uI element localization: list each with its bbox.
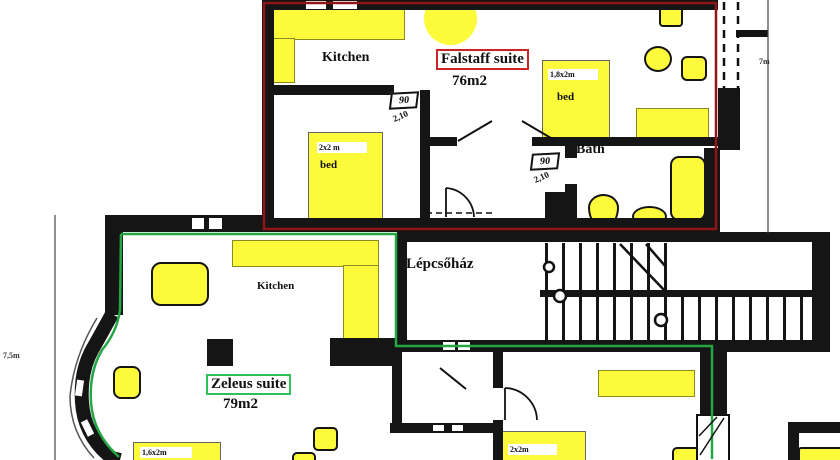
wall	[262, 85, 394, 95]
hatched-window	[696, 414, 730, 460]
wall	[812, 232, 830, 344]
window-gap	[333, 1, 357, 9]
wall	[105, 215, 123, 315]
window-gap	[306, 1, 326, 9]
falstaff-suite-title: Falstaff suite	[436, 49, 529, 70]
falstaff-radiator	[636, 108, 709, 139]
bed-label: bed	[557, 91, 574, 103]
zeleus-table	[151, 262, 209, 306]
falstaff-kitchen-counter-top	[267, 8, 405, 40]
double-door-leaf	[458, 121, 492, 141]
wall	[493, 352, 503, 388]
falstaff-kitchen-label: Kitchen	[322, 50, 369, 65]
wall	[262, 0, 274, 232]
wall	[392, 352, 402, 424]
armchair	[113, 366, 141, 399]
door-leaf	[440, 368, 466, 389]
window-gap	[209, 218, 222, 229]
wall	[704, 148, 720, 232]
wall	[545, 192, 577, 232]
wall	[532, 137, 718, 146]
wall	[397, 232, 830, 242]
zeleus-bed-left: 1,6x2m	[133, 442, 221, 460]
stairwell-label: Lépcsőház	[406, 256, 474, 273]
wall	[427, 137, 457, 146]
bed-size-label: 2x2 m	[317, 142, 367, 153]
door-dimension-label: 90 2,10	[531, 153, 559, 180]
falstaff-bed-large: 1,8x2m bed	[542, 60, 610, 140]
bed-size-label: 2x2m	[508, 444, 557, 455]
bed-size-label: 1,8x2m	[548, 69, 598, 80]
window-gap	[192, 218, 204, 229]
zeleus-kitchen-counter-top	[232, 240, 379, 267]
bay-window-outer-line	[70, 318, 97, 458]
window-gap	[433, 425, 444, 431]
wall	[262, 0, 718, 10]
stool-square	[292, 452, 316, 460]
side-table-small	[681, 56, 707, 81]
door-arc	[505, 388, 537, 420]
zeleus-kitchen-label: Kitchen	[257, 280, 294, 292]
bath-label: Bath	[576, 142, 605, 157]
bathtub	[670, 156, 706, 221]
zeleus-suite-title: Zeleus suite	[206, 374, 291, 395]
zeleus-area-label: 79m2	[223, 396, 258, 413]
window-gap	[81, 419, 94, 436]
dimension-left: 7,5m	[3, 351, 20, 360]
wall	[420, 90, 430, 232]
falstaff-bed-small: 2x2 m bed	[308, 132, 383, 219]
zeleus-kitchen-counter-side	[343, 265, 379, 344]
wall	[330, 338, 398, 366]
door-dimension-label: 90 2,10	[390, 92, 418, 119]
window-gap	[458, 342, 470, 350]
zeleus-radiator	[598, 370, 695, 397]
stair-flight-lower	[545, 297, 813, 340]
window-gap	[443, 342, 455, 350]
stair-flight-upper	[545, 243, 667, 290]
window-gap	[452, 425, 463, 431]
wall	[736, 30, 768, 37]
window-gap	[75, 380, 84, 397]
furniture-partial	[798, 447, 840, 460]
stair-rail	[540, 290, 816, 297]
wall	[105, 215, 265, 232]
wall	[262, 218, 718, 232]
dimension-right: 7m	[759, 57, 770, 66]
wall	[788, 422, 799, 460]
zeleus-bed-right: 2x2m	[501, 431, 586, 460]
bed-size-label: 1,6x2m	[140, 447, 192, 458]
stool-round	[644, 46, 672, 72]
door-arc	[446, 188, 474, 217]
pillar	[207, 339, 233, 366]
floorplan: 1,8x2m bed 2x2 m bed 1,6x2m 2x2m	[0, 0, 840, 460]
wall	[718, 88, 740, 150]
falstaff-area-label: 76m2	[452, 73, 487, 90]
bed-label: bed	[320, 159, 337, 171]
wall	[493, 420, 503, 460]
stool-square	[313, 427, 338, 451]
